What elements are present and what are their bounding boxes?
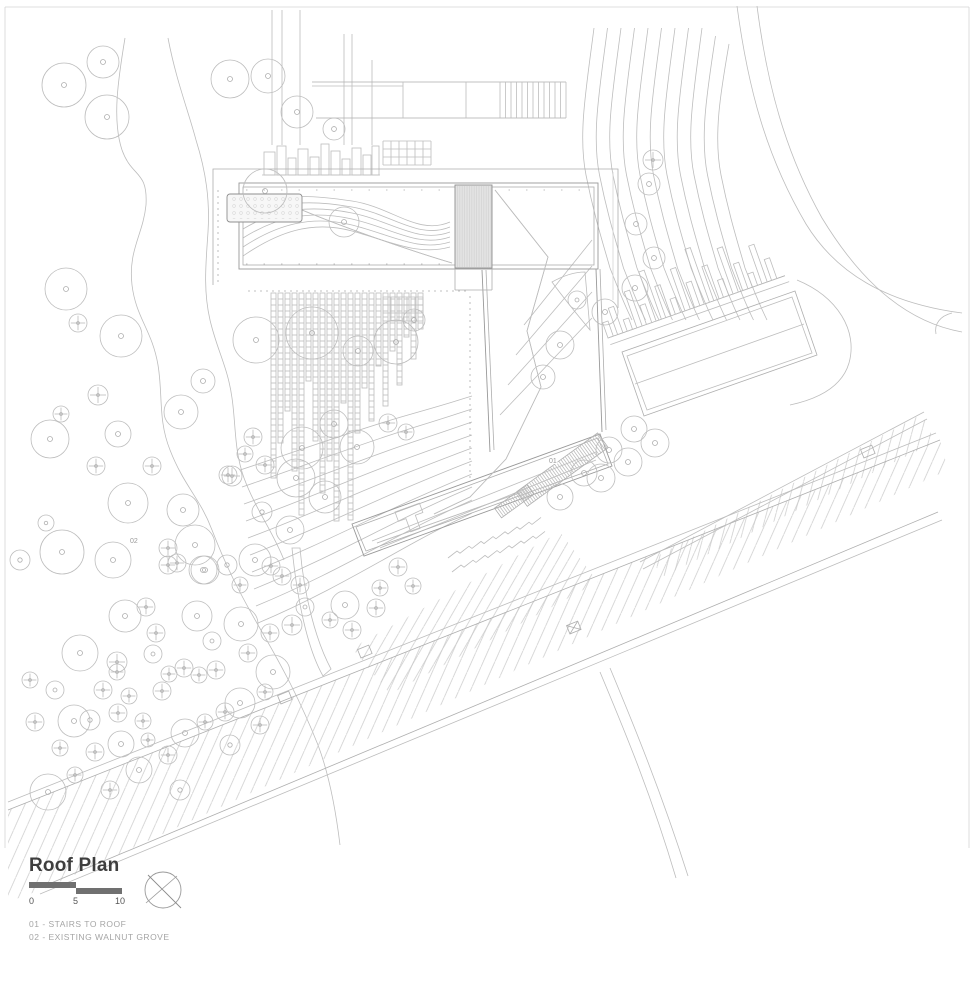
terraced-planting-strips	[271, 293, 423, 521]
scale-bar-segment-1	[29, 882, 76, 888]
north-arrow-icon	[137, 863, 189, 915]
scale-label-10: 10	[115, 896, 125, 906]
roof-plan-drawing: 0102	[0, 0, 972, 1000]
scale-label-0: 0	[29, 896, 34, 906]
hatched-roads	[8, 412, 948, 902]
title-block: Roof Plan 0 5 10 01 - STAIRS TO ROOF 02 …	[29, 855, 170, 944]
legend-item-01: 01 - STAIRS TO ROOF	[29, 918, 170, 931]
stairs-to-roof	[455, 185, 608, 518]
scale-label-5: 5	[73, 896, 78, 906]
legend-item-02: 02 - EXISTING WALNUT GROVE	[29, 931, 170, 944]
terrace-piers	[589, 220, 789, 344]
sheet-border	[5, 7, 969, 848]
keynote-01: 01	[549, 458, 557, 465]
sports-field	[622, 291, 817, 416]
upper-site-structures	[262, 10, 566, 321]
keynote-legend: 01 - STAIRS TO ROOF 02 - EXISTING WALNUT…	[29, 918, 170, 944]
roof-plan-sheet: 0102 Roof Plan 0 5 10 01 - STAIRS TO ROO…	[0, 0, 972, 1000]
scale-bar-segment-2	[76, 888, 122, 894]
contour-lines	[240, 28, 767, 623]
keynote-02: 02	[130, 538, 138, 545]
road-edges	[292, 6, 962, 878]
